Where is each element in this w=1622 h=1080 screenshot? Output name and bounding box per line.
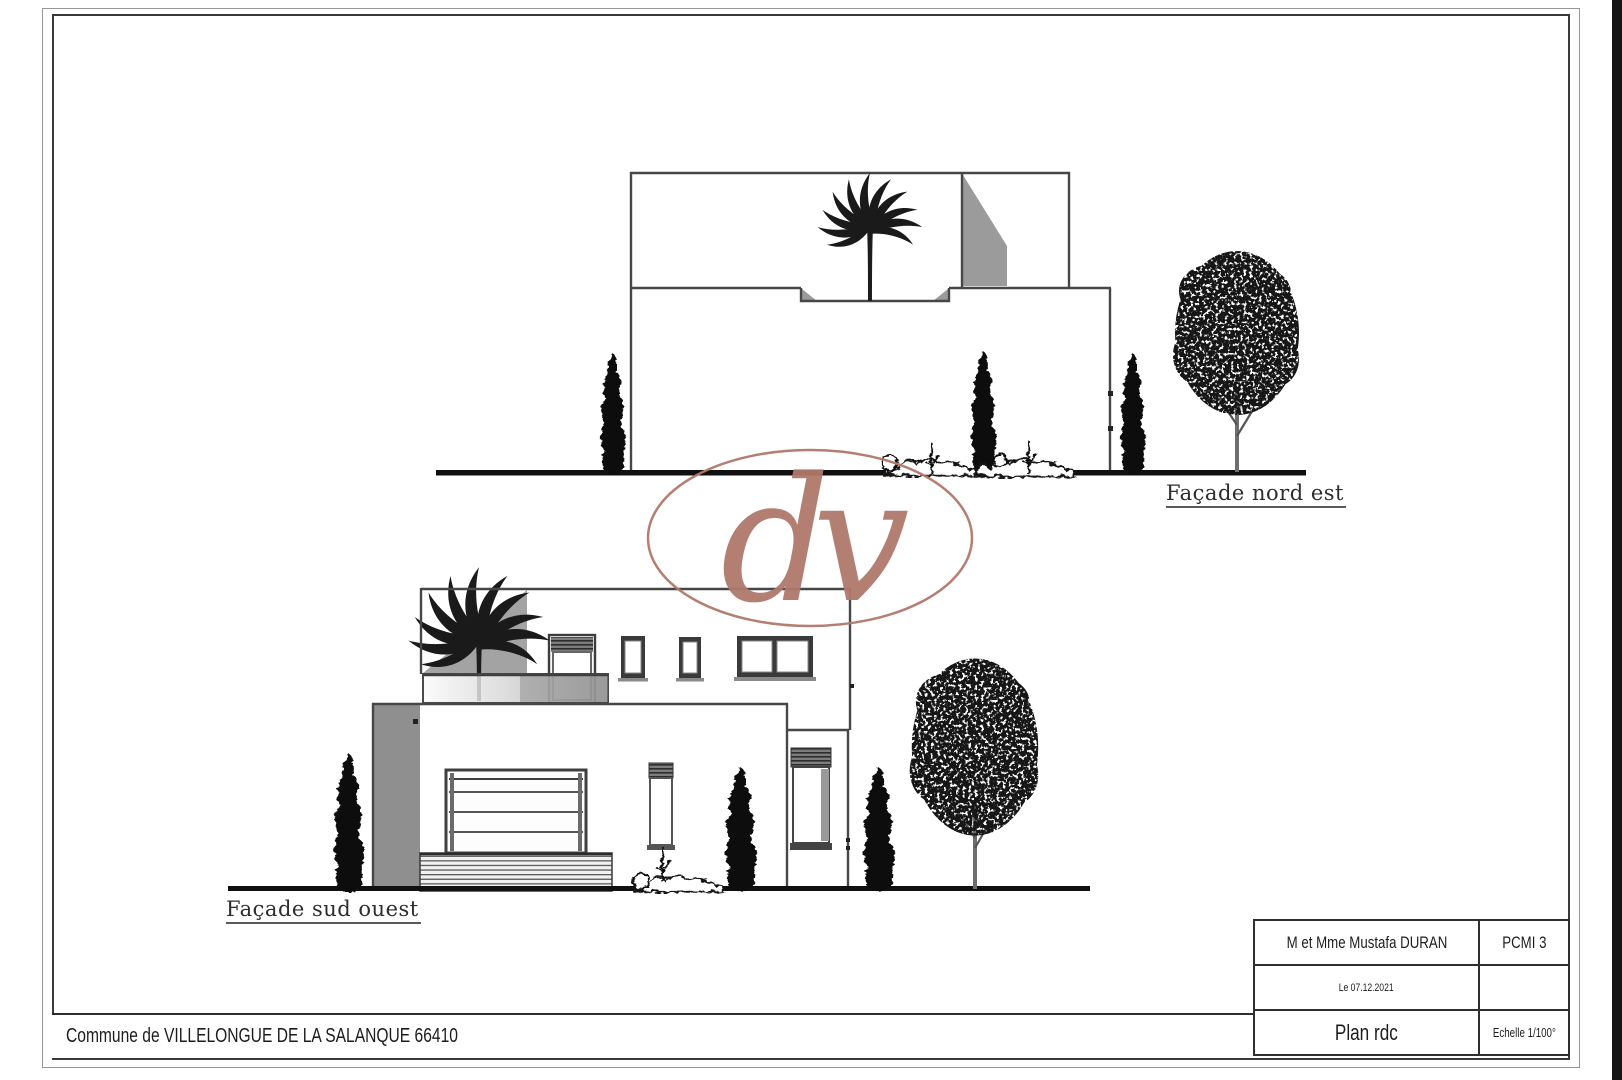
commune-label: Commune de VILLELONGUE DE LA SALANQUE 66… (66, 1025, 458, 1048)
scale-cell: Echelle 1/100° (1480, 1011, 1568, 1054)
scan-edge-strip (1612, 0, 1622, 1080)
side-return-shadow (373, 704, 420, 890)
title-block: M et Mme Mustafa DURAN PCMI 3 Le 07.12.2… (1253, 919, 1570, 1056)
wing-window (790, 748, 832, 850)
deciduous-tree-icon (1173, 251, 1299, 472)
plinth-louvres (420, 853, 612, 891)
elevation-nord-est (436, 172, 1306, 477)
deciduous-tree-icon (910, 658, 1039, 889)
label-facade-sud-ouest: Façade sud ouest (226, 897, 421, 924)
permit-ref-cell: PCMI 3 (1480, 921, 1568, 966)
door-window (647, 763, 675, 850)
cypress-tree-icon (601, 352, 626, 474)
watermark-letters: dv (720, 440, 908, 641)
client-name-cell: M et Mme Mustafa DURAN (1255, 921, 1480, 966)
elevation-sud-ouest (228, 567, 1090, 892)
plan-sheet: dv Façade nord est Façade sud ouest M et… (0, 0, 1622, 1080)
cypress-tree-icon (334, 752, 364, 892)
cypress-tree-icon (1121, 352, 1146, 474)
garage-door (446, 770, 586, 853)
window-narrow (676, 637, 704, 682)
commune-bar: Commune de VILLELONGUE DE LA SALANQUE 66… (52, 1013, 1253, 1058)
cypress-tree-icon (863, 766, 894, 891)
sheet-title-cell: Plan rdc (1255, 1011, 1480, 1054)
empty-cell (1480, 966, 1568, 1011)
label-facade-nord-est: Façade nord est (1166, 481, 1346, 508)
window-narrow (618, 636, 648, 682)
window-wide (734, 636, 816, 681)
terrace-railing (423, 674, 608, 703)
date-cell: Le 07.12.2021 (1255, 966, 1480, 1011)
